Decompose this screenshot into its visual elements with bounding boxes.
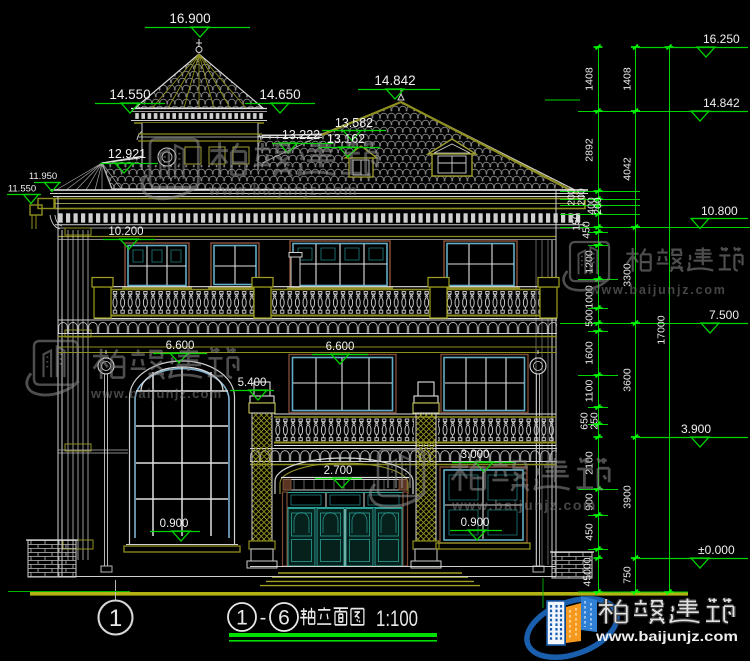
svg-text:750: 750 <box>622 566 634 584</box>
svg-text:16.900: 16.900 <box>169 11 210 26</box>
svg-text:200: 200 <box>592 197 604 215</box>
svg-text:14.842: 14.842 <box>374 73 415 88</box>
svg-text:1: 1 <box>109 605 122 632</box>
svg-text:14.842: 14.842 <box>703 96 740 110</box>
svg-text:-: - <box>260 607 267 629</box>
svg-text:1408: 1408 <box>622 67 634 91</box>
svg-text:250: 250 <box>589 412 601 430</box>
svg-text:11.950: 11.950 <box>29 171 57 182</box>
svg-text:450: 450 <box>581 221 593 239</box>
svg-text:14.550: 14.550 <box>109 87 150 102</box>
svg-text:www.baijunjz.com: www.baijunjz.com <box>589 283 727 297</box>
svg-text:2892: 2892 <box>584 138 596 162</box>
svg-text:1:100: 1:100 <box>376 606 418 631</box>
svg-text:3600: 3600 <box>622 368 634 392</box>
svg-text:7.500: 7.500 <box>709 308 739 322</box>
svg-text:1600: 1600 <box>584 341 596 365</box>
svg-text:2.700: 2.700 <box>324 465 353 477</box>
svg-text:10.800: 10.800 <box>701 204 738 218</box>
svg-text:6: 6 <box>278 607 290 630</box>
svg-text:4042: 4042 <box>622 157 634 181</box>
svg-text:1100: 1100 <box>584 380 596 403</box>
svg-text:0.900: 0.900 <box>160 518 189 530</box>
svg-text:45000: 45000 <box>582 557 594 586</box>
svg-text:6.600: 6.600 <box>326 341 355 353</box>
svg-text:13.222: 13.222 <box>282 128 320 142</box>
svg-text:17000: 17000 <box>656 315 668 344</box>
svg-text:±0.000: ±0.000 <box>698 543 735 557</box>
svg-text:3900: 3900 <box>622 485 634 509</box>
svg-text:www.baijunjz.com: www.baijunjz.com <box>208 183 358 199</box>
svg-text:www.baijunjz.com: www.baijunjz.com <box>595 629 738 644</box>
svg-text:3.000: 3.000 <box>461 449 490 461</box>
svg-text:1: 1 <box>236 607 248 630</box>
svg-text:16.250: 16.250 <box>703 32 740 46</box>
svg-text:10.200: 10.200 <box>108 226 143 238</box>
svg-text:www.baijunjz.com: www.baijunjz.com <box>90 386 222 401</box>
svg-text:12.921: 12.921 <box>108 147 146 161</box>
svg-text:www.baijunjz.com: www.baijunjz.com <box>451 497 597 513</box>
svg-text:500: 500 <box>584 309 596 327</box>
svg-text:13.162: 13.162 <box>327 132 365 146</box>
svg-text:11.550: 11.550 <box>8 184 36 195</box>
svg-text:450: 450 <box>584 523 596 541</box>
svg-text:13.582: 13.582 <box>335 116 373 130</box>
svg-text:6.600: 6.600 <box>166 340 195 352</box>
svg-text:14.650: 14.650 <box>259 87 300 102</box>
svg-text:5.400: 5.400 <box>238 377 267 389</box>
svg-text:1408: 1408 <box>584 67 596 91</box>
svg-text:3.900: 3.900 <box>681 422 711 436</box>
svg-text:0.900: 0.900 <box>461 517 490 529</box>
